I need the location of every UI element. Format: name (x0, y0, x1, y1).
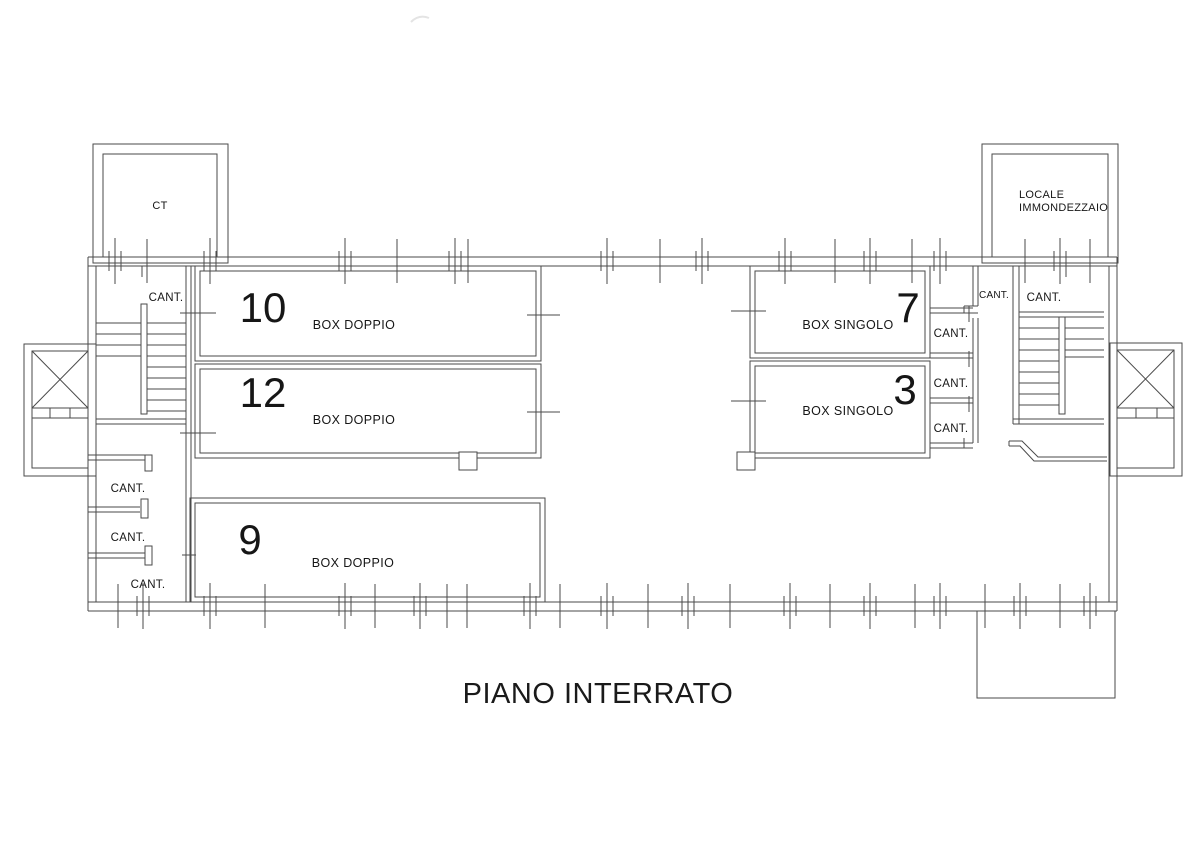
cellar-label-top-narrow: CANT. (979, 290, 1009, 301)
room-ct: CT (93, 144, 228, 263)
scan-artifact (411, 17, 429, 22)
wall-opening-ticks (180, 311, 766, 555)
elevator-shaft-left (24, 344, 96, 476)
garage-box-10: 10 BOX DOPPIO (195, 266, 541, 361)
column-marks-bottom (118, 583, 1096, 629)
cellar-label-right-2: CANT. (934, 378, 969, 390)
staircase-right (1013, 266, 1104, 424)
box-10-number: 10 (240, 284, 287, 331)
garage-box-12: 12 BOX DOPPIO (195, 364, 541, 458)
column-pillar-right (737, 452, 755, 470)
box-9-number: 9 (238, 516, 261, 563)
garage-box-3: 3 BOX SINGOLO (750, 361, 930, 458)
elevator-shaft-right (1110, 343, 1182, 476)
cellar-label-right-1: CANT. (934, 328, 969, 340)
ramp-wall (1009, 441, 1107, 461)
box-7-number: 7 (896, 284, 919, 331)
box-7-type: BOX SINGOLO (802, 318, 893, 332)
plan-title: PIANO INTERRATO (463, 678, 734, 710)
room-waste-label-line1: LOCALE (1019, 189, 1064, 201)
cellar-label-top-wide: CANT. (1027, 292, 1062, 304)
ramp-area (977, 611, 1115, 698)
cellar-label-left-1: CANT. (111, 483, 146, 495)
elevator-x-icon-right (1117, 350, 1174, 408)
box-10-type: BOX DOPPIO (313, 318, 396, 332)
cellar-label-right-3: CANT. (934, 423, 969, 435)
box-12-type: BOX DOPPIO (313, 413, 396, 427)
floor-plan: CT LOCALE IMMONDEZZAIO (0, 0, 1200, 848)
cellar-column-right: CANT. CANT. CANT. CANT. CANT. (930, 266, 1061, 448)
floor-plan-page: CT LOCALE IMMONDEZZAIO (0, 0, 1200, 848)
box-12-number: 12 (240, 369, 287, 416)
box-9-type: BOX DOPPIO (312, 556, 395, 570)
box-3-number: 3 (893, 366, 916, 413)
box-3-type: BOX SINGOLO (802, 404, 893, 418)
room-waste-label-line2: IMMONDEZZAIO (1019, 202, 1108, 214)
cellar-label-left-3: CANT. (131, 579, 166, 591)
garage-box-7: 7 BOX SINGOLO (750, 266, 930, 358)
garage-box-9: 9 BOX DOPPIO (190, 498, 545, 602)
room-locale-immondezzaio: LOCALE IMMONDEZZAIO (982, 144, 1118, 263)
room-ct-label: CT (152, 200, 167, 212)
column-marks-top (109, 238, 1090, 284)
elevator-x-icon-left (32, 351, 88, 408)
staircase-left (96, 304, 186, 424)
cellar-label-left-stairs: CANT. (149, 292, 184, 304)
cellar-label-left-2: CANT. (111, 532, 146, 544)
column-pillar-left (459, 452, 477, 470)
cellar-column-left: CANT. CANT. CANT. CANT. (88, 292, 183, 591)
